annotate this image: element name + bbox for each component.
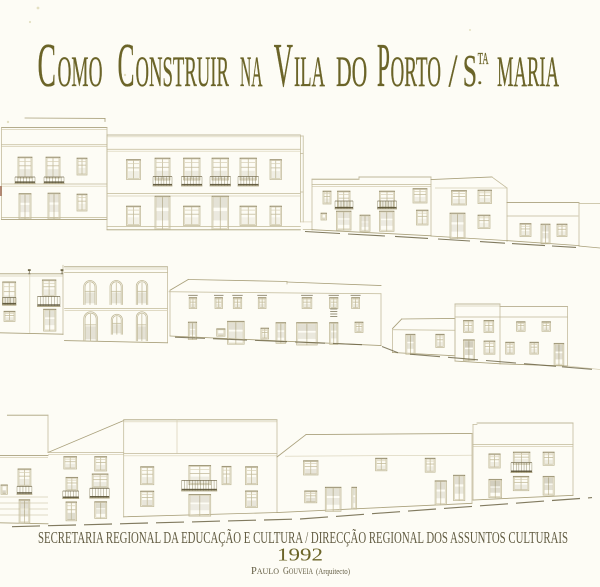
svg-text:TA: TA [478,49,489,68]
svg-text:ONSTRUIR: ONSTRUIR [136,49,230,96]
svg-text:S: S [463,45,477,96]
svg-text:C: C [38,32,57,100]
svg-text:DO: DO [336,49,367,96]
svg-text:ILA: ILA [294,49,325,96]
svg-text:V: V [274,32,293,100]
svg-text:P: P [377,32,390,100]
svg-text:ORTO: ORTO [391,49,442,96]
svg-text:OMO: OMO [58,49,103,96]
svg-text:(Arquitecto): (Arquitecto) [316,567,350,576]
svg-text:/: / [449,45,459,97]
svg-text:NA: NA [240,49,263,96]
svg-text:GOUVEIA: GOUVEIA [283,565,314,577]
svg-text:PAULO: PAULO [251,565,279,577]
svg-text:MARIA: MARIA [497,49,559,96]
svg-text:C: C [118,32,135,100]
svg-text:1992: 1992 [277,545,323,565]
